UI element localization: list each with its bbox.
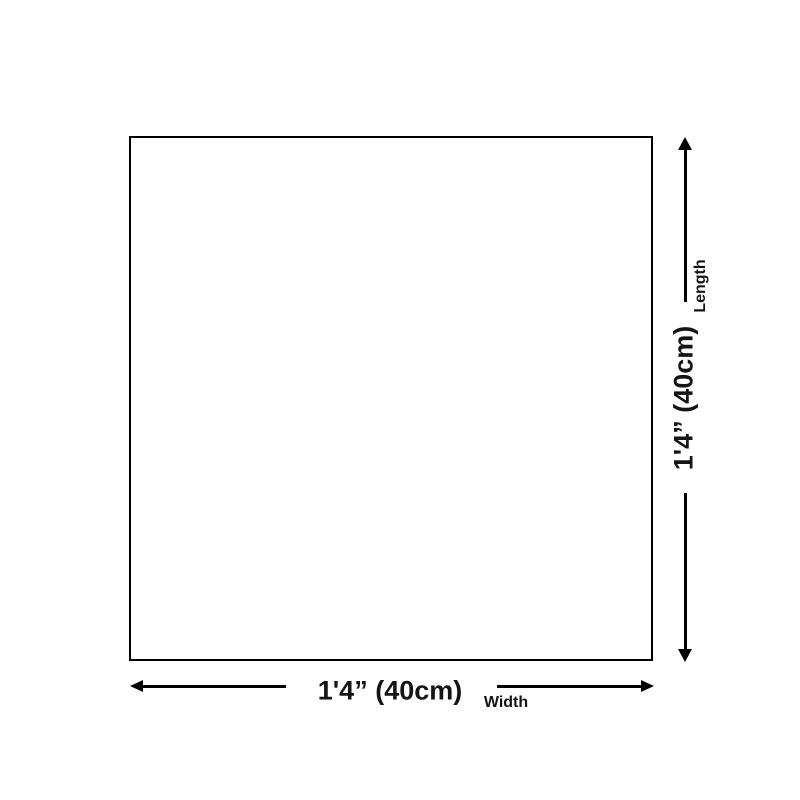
width-dimension-line-left (142, 685, 286, 688)
width-value: 1'4” (40cm) (318, 676, 463, 707)
length-dimension-line-lower (684, 493, 687, 650)
product-outline (129, 136, 653, 661)
arrow-right-icon (641, 680, 654, 692)
dimension-diagram: Length 1'4” (40cm) 1'4” (40cm) Width (0, 0, 800, 800)
length-label: Length (692, 259, 710, 312)
length-value: 1'4” (40cm) (669, 326, 700, 471)
length-dimension-line-upper (684, 149, 687, 302)
width-label: Width (484, 694, 528, 712)
arrow-down-icon (678, 649, 692, 662)
width-dimension-line-right (497, 685, 642, 688)
